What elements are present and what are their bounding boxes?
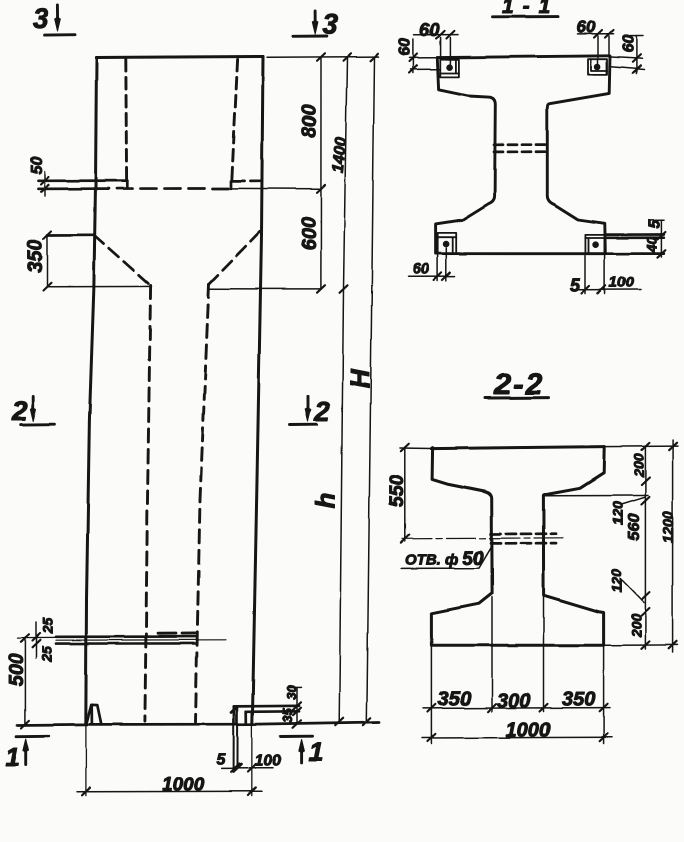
svg-text:25: 25 (40, 618, 56, 635)
svg-text:5: 5 (570, 276, 581, 296)
svg-text:60: 60 (620, 35, 637, 53)
svg-text:120: 120 (610, 501, 626, 525)
svg-text:800: 800 (299, 104, 321, 137)
svg-text:50: 50 (29, 157, 46, 175)
svg-text:1200: 1200 (661, 511, 677, 543)
svg-text:60: 60 (420, 21, 440, 41)
svg-text:200: 200 (628, 614, 644, 639)
svg-text:35: 35 (280, 708, 295, 723)
svg-text:350: 350 (25, 239, 47, 272)
svg-text:3: 3 (33, 3, 49, 34)
svg-text:H: H (345, 368, 375, 388)
svg-text:600: 600 (299, 217, 321, 250)
svg-text:1: 1 (309, 737, 323, 767)
svg-text:1: 1 (5, 742, 19, 772)
svg-text:5: 5 (217, 752, 227, 769)
svg-text:100: 100 (255, 753, 282, 770)
svg-text:2-2: 2-2 (494, 368, 544, 401)
svg-text:1000: 1000 (162, 775, 205, 796)
svg-text:500: 500 (6, 653, 28, 686)
svg-text:2: 2 (314, 396, 331, 427)
svg-text:5: 5 (647, 218, 664, 228)
svg-text:3: 3 (323, 9, 339, 40)
svg-text:300: 300 (497, 691, 530, 713)
svg-text:30: 30 (284, 685, 299, 700)
svg-text:2: 2 (11, 395, 28, 426)
svg-text:550: 550 (387, 475, 408, 507)
svg-text:200: 200 (631, 454, 647, 479)
svg-text:40: 40 (644, 237, 660, 254)
svg-text:100: 100 (609, 274, 635, 291)
svg-text:350: 350 (438, 689, 471, 711)
svg-text:60: 60 (397, 38, 414, 56)
svg-text:25: 25 (39, 646, 55, 663)
svg-text:120: 120 (608, 569, 624, 593)
svg-text:1000: 1000 (506, 720, 551, 742)
svg-text:560: 560 (626, 514, 643, 541)
svg-text:h: h (311, 492, 341, 508)
svg-text:60: 60 (577, 18, 596, 37)
svg-text:ОТВ. ф 50: ОТВ. ф 50 (405, 549, 484, 570)
svg-text:60: 60 (413, 261, 430, 278)
svg-text:350: 350 (562, 689, 595, 711)
